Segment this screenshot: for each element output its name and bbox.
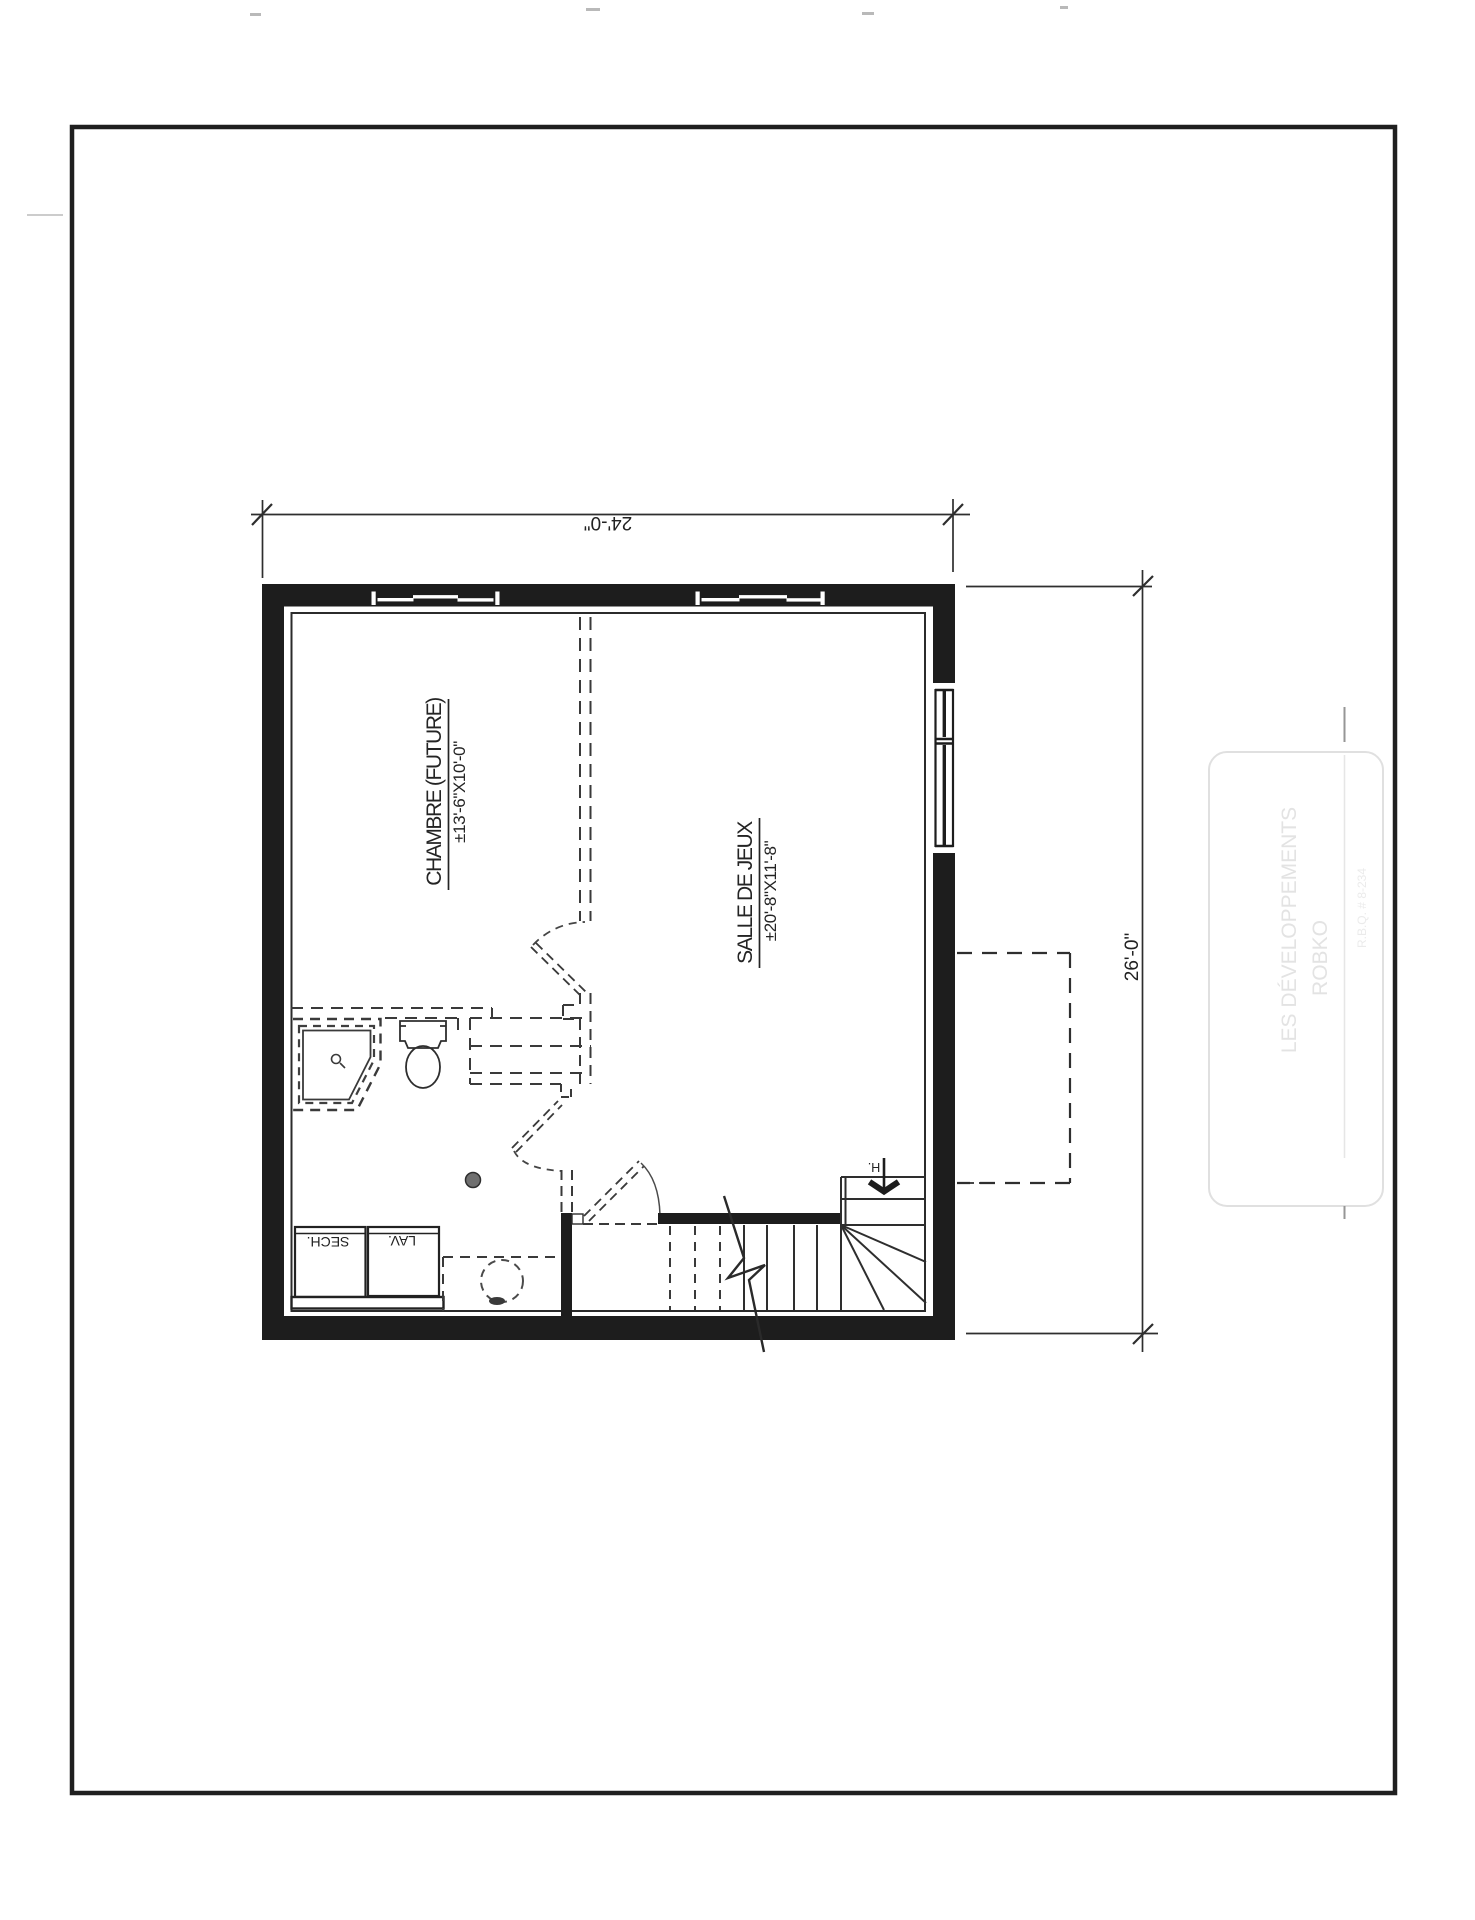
- svg-text:26'-0": 26'-0": [1122, 933, 1143, 981]
- svg-text:SECH.: SECH.: [307, 1234, 350, 1250]
- svg-text:CHAMBRE (FUTURE): CHAMBRE (FUTURE): [423, 698, 446, 886]
- svg-text:±20'-8"X11'-8": ±20'-8"X11'-8": [761, 840, 780, 941]
- svg-text:24'-0": 24'-0": [584, 512, 632, 533]
- svg-text:ROBKO: ROBKO: [1309, 920, 1332, 996]
- svg-text:LAV.: LAV.: [388, 1233, 416, 1249]
- svg-text:±13'-6"X10'-0": ±13'-6"X10'-0": [450, 741, 469, 843]
- svg-text:LES DÉVELOPPEMENTS: LES DÉVELOPPEMENTS: [1278, 807, 1301, 1053]
- svg-text:H.: H.: [868, 1160, 881, 1174]
- svg-text:SALLE DE JEUX: SALLE DE JEUX: [734, 821, 757, 964]
- svg-text:R.B.Q. # 8-234: R.B.Q. # 8-234: [1355, 868, 1369, 948]
